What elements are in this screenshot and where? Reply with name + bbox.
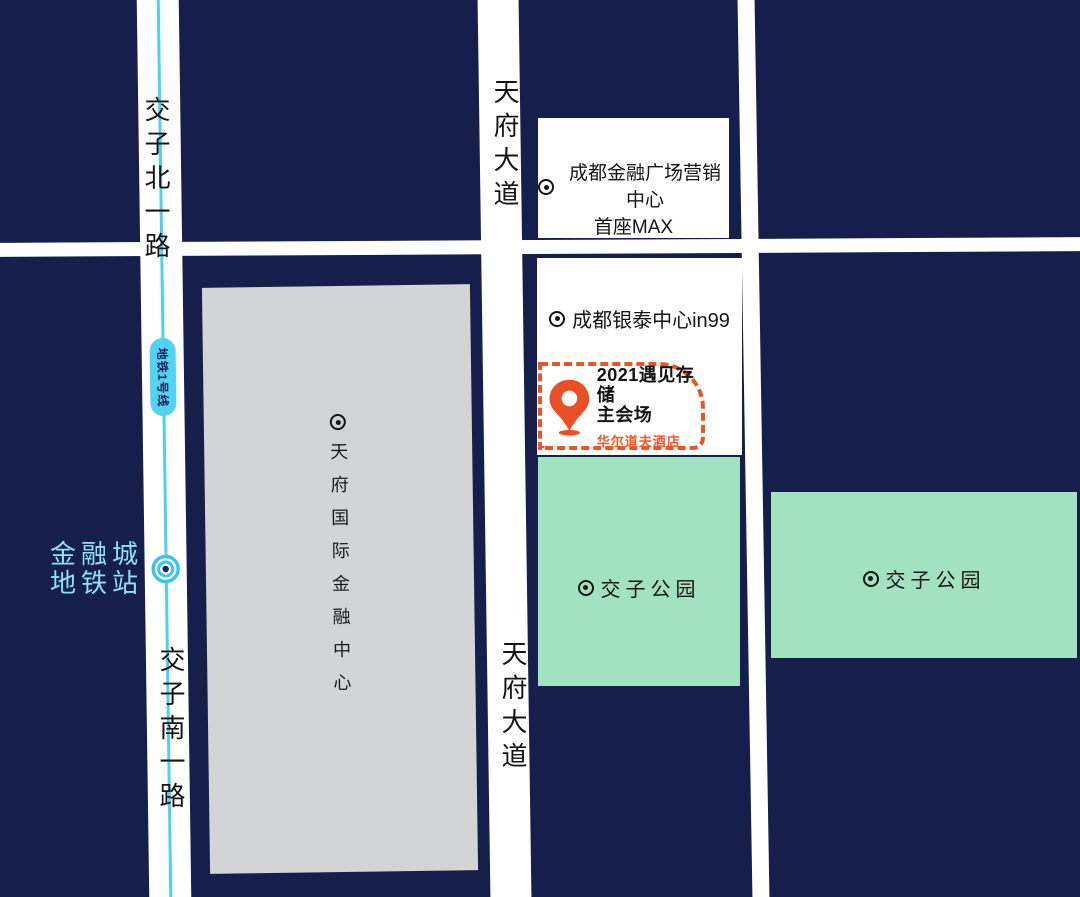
venue-hotel-name: 华尔道夫酒店 [597, 431, 701, 450]
park-west-name: 交子公园 [601, 573, 701, 602]
metro-line-label: 地铁1号线 [154, 347, 172, 407]
metro-station-icon [149, 553, 181, 585]
metro-station-label-line2: 地铁站 [50, 569, 143, 598]
poi-marker-icon [578, 580, 594, 596]
metro-station-label: 金融城 地铁站 [50, 540, 143, 598]
finance-center-label: 天府国际金融中心 [325, 414, 355, 706]
location-pin-icon [546, 375, 593, 439]
venue-title: 2021遇见存储 主会场 [597, 365, 701, 425]
marketing-center-name: 成都金融广场营销中心 [561, 160, 729, 214]
street-label-jiaozi-north: 交子北一路 [138, 96, 175, 266]
street-label-tianfu-bottom: 天府大道 [495, 640, 532, 776]
poi-marker-icon [863, 571, 879, 587]
in99-name: 成都银泰中心in99 [572, 304, 730, 333]
metro-station-label-line1: 金融城 [50, 540, 143, 569]
building-tianfu-international-finance-center: 天府国际金融中心 [202, 284, 478, 874]
park-jiaozi-west: 交子公园 [538, 457, 740, 686]
building-marketing-center: 成都金融广场营销中心 首座MAX [538, 118, 729, 238]
venue-highlight-box: 2021遇见存储 主会场 华尔道夫酒店 [538, 362, 705, 450]
poi-marker-icon [549, 311, 565, 327]
park-jiaozi-east: 交子公园 [771, 492, 1077, 658]
venue-title-line2: 主会场 [597, 405, 701, 425]
venue-title-line1: 2021遇见存储 [597, 365, 701, 405]
park-east-name: 交子公园 [886, 564, 986, 593]
finance-center-name: 天府国际金融中心 [325, 442, 355, 706]
road-east [737, 0, 769, 897]
metro-line-badge: 地铁1号线 [149, 338, 176, 416]
poi-marker-icon [538, 179, 554, 195]
street-label-tianfu-top: 天府大道 [487, 78, 524, 214]
marketing-center-subname: 首座MAX [538, 214, 729, 241]
map-canvas: 地铁1号线 交子北一路 交子南一路 天府大道 天府大道 金融城 地铁站 天府国际… [0, 0, 1080, 897]
poi-marker-icon [330, 414, 346, 430]
street-label-jiaozi-south: 交子南一路 [153, 646, 190, 816]
